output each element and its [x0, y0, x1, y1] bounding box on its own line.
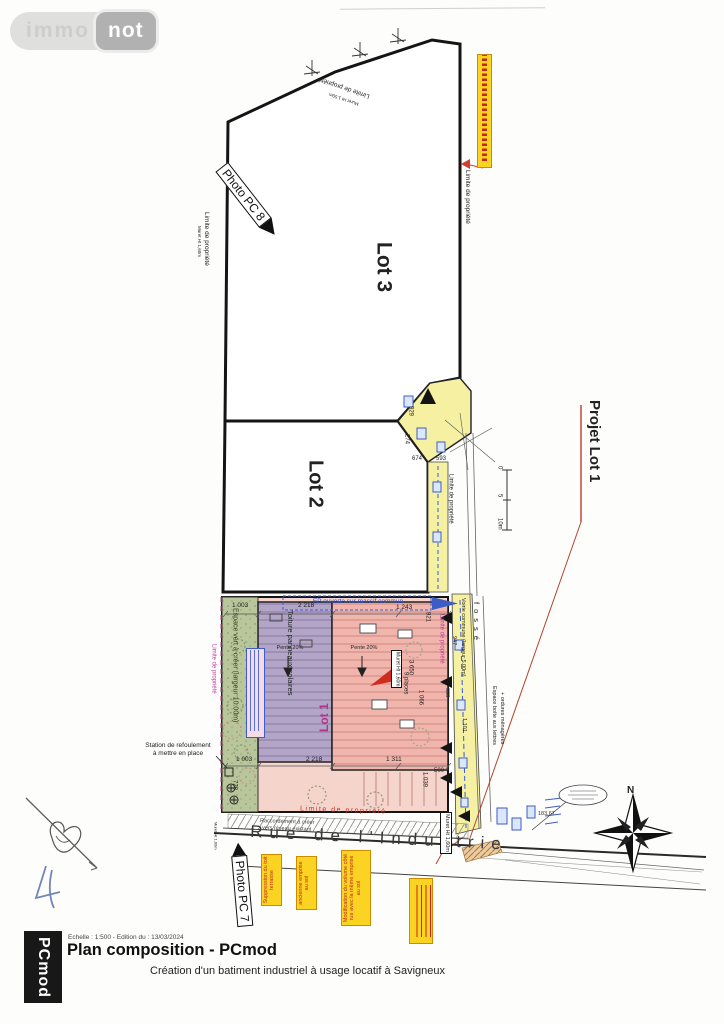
lot2-label: Lot 2	[304, 460, 326, 508]
red-leader-lines	[466, 164, 581, 838]
limite-label-west: Limite de propriété	[203, 212, 210, 266]
dim-638: 638	[443, 688, 449, 697]
note-small-illegible	[409, 878, 433, 944]
dim-1243: 1 243	[396, 604, 412, 611]
elevation-label: 183.67	[538, 812, 555, 818]
building-roof-west	[258, 602, 332, 762]
dim-921: 921	[424, 612, 430, 622]
compass-rose-icon	[595, 795, 671, 871]
logo-not: not	[96, 12, 156, 50]
titleblock-title: Plan composition - PCmod	[67, 942, 277, 960]
voirie-label: Voirie commune (largeur 5.00m)	[459, 598, 465, 677]
yellow-note-fosse-text	[482, 55, 487, 160]
dim-929: 929	[407, 406, 413, 416]
noue-infiltration-text	[250, 650, 262, 731]
building-roof-east	[332, 602, 448, 770]
dim-1066: 1 066	[417, 690, 423, 705]
scanned-plan-page: immo not	[0, 0, 724, 1024]
lot3-label: Lot 3	[372, 242, 395, 292]
red-arrowhead	[461, 159, 470, 169]
scale-0: 0	[496, 466, 502, 469]
noue-infiltration-note	[246, 648, 265, 738]
note-ancienne-emprise: ancienne emprise au sol	[296, 856, 317, 910]
boite-lettres-label-1: Espace boîte aux lettres	[490, 686, 496, 745]
muret-label-road-west: Muret Ht 1,60m	[213, 822, 217, 850]
titleblock-brand: PCmod	[34, 937, 52, 998]
station-label-1: Station de refoulement	[136, 742, 220, 749]
scale-5: 5	[496, 494, 502, 497]
projet-lot1-label: Projet Lot 1	[586, 400, 602, 483]
dim-1311: 1 311	[386, 756, 402, 763]
titleblock-subtitle: Création d'un batiment industriel à usag…	[150, 966, 445, 978]
dim-3650: 3 650	[407, 660, 413, 675]
titleblock-brand-box: PCmod	[24, 931, 62, 1003]
note-suppression: Suppression du toit terrasse	[261, 854, 282, 906]
limite-label-site-east: Limite de propriété	[438, 614, 444, 664]
toiture-label: Toiture panneaux solaires	[286, 610, 294, 695]
handwritten-marks	[26, 798, 97, 908]
note-modification: Modification du volume côté rue avec la …	[341, 850, 371, 926]
station-label-2: à mettre en place	[136, 750, 220, 757]
dim-593: 593	[436, 456, 446, 462]
scale-bar	[502, 470, 512, 530]
fosse-label: fossé	[472, 602, 480, 645]
dim-1039: 1 039	[421, 772, 427, 787]
note-small-text	[413, 885, 430, 938]
dim-2218-bottom: 2 218	[306, 756, 322, 763]
dim-1101: 1 101	[460, 718, 466, 732]
dim-2218-top: 2 218	[298, 602, 314, 609]
boite-lettres-label-2: + ordures ménagères	[498, 692, 504, 744]
compass-north-label: N	[627, 786, 634, 797]
dim-947: 947	[450, 636, 456, 645]
dim-1003-top: 1 003	[232, 602, 248, 609]
dim-674: 674	[412, 456, 422, 462]
dim-500: 500	[434, 768, 444, 774]
scale-10: 10m	[496, 518, 502, 530]
espace-vert-label: Espace vert à créer (largeur 10.00m)	[231, 608, 239, 722]
places-label: 9 places	[402, 672, 408, 694]
pente-label-1: Pente 20%	[270, 646, 310, 652]
logo-immo: immo	[10, 12, 98, 50]
immonot-logo: immo not	[10, 12, 156, 50]
limite-label-east: Limite de propriété	[464, 170, 471, 224]
photo-pc7-arrow-icon	[231, 842, 246, 856]
limite-label-site-west: Limite de propriété	[210, 644, 216, 694]
dim-274: 274	[403, 434, 409, 444]
muret-pill-road: Muret Ht 1,60m	[440, 812, 452, 854]
muret-pill-site: Muret Ht 1,60m	[391, 650, 402, 688]
limite-label-mid: Limite de propriété	[447, 474, 453, 524]
muret-label-west: Muret Ht 1,60m	[196, 226, 201, 257]
dim-728: 728	[231, 780, 237, 790]
callout-bubble	[532, 785, 607, 830]
lot1-label: Lot 1	[318, 703, 331, 732]
dim-1003-bottom: 1 003	[236, 756, 252, 763]
titleblock-meta: Echelle : 1:500 - Edition du : 13/03/202…	[68, 934, 184, 941]
yellow-note-fosse	[477, 54, 492, 168]
pente-label-2: Pente 20%	[344, 646, 384, 652]
